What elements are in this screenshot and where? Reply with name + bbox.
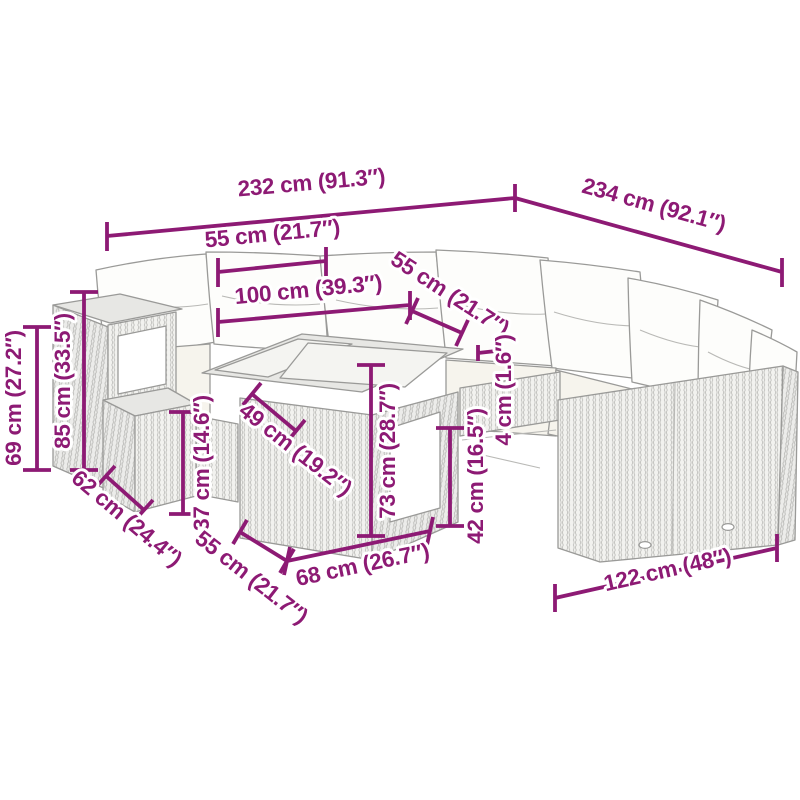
dimension-diagram: 232 cm (91.3″) 234 cm (92.1″) 55 cm (21.… bbox=[0, 0, 800, 800]
diagram-canvas: 232 cm (91.3″) 234 cm (92.1″) 55 cm (21.… bbox=[0, 0, 800, 800]
dim-label: 234 cm (92.1″) bbox=[579, 173, 728, 237]
furniture-drawing bbox=[53, 250, 798, 562]
right-front-panel bbox=[558, 366, 798, 562]
dim-label: 73 cm (28.7″) bbox=[375, 383, 400, 519]
dim-label: 4 cm (1.6″) bbox=[491, 334, 516, 445]
stool-front-face bbox=[135, 404, 196, 512]
dim-label: 232 cm (91.3″) bbox=[237, 164, 387, 202]
table bbox=[202, 334, 463, 560]
screw-hole bbox=[722, 524, 734, 531]
panel-face bbox=[558, 366, 783, 562]
screw-hole bbox=[639, 542, 651, 549]
dim-armrest-height: 69 cm (27.2″) bbox=[1, 327, 51, 470]
dim-label: 42 cm (16.5″) bbox=[463, 408, 488, 544]
dim-label: 37 cm (14.6″) bbox=[189, 395, 214, 531]
dim-label: 55 cm (21.7″) bbox=[204, 215, 341, 253]
armrest-window bbox=[118, 326, 166, 394]
dim-label: 85 cm (33.5″) bbox=[50, 313, 75, 449]
dim-label: 69 cm (27.2″) bbox=[1, 330, 26, 466]
